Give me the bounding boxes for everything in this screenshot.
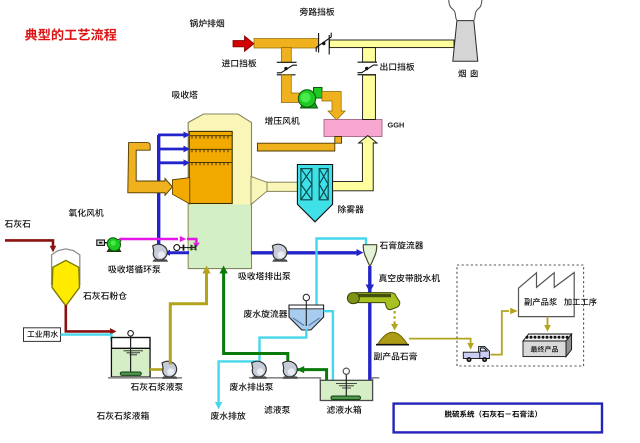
svg-text:GGH: GGH — [388, 121, 405, 130]
